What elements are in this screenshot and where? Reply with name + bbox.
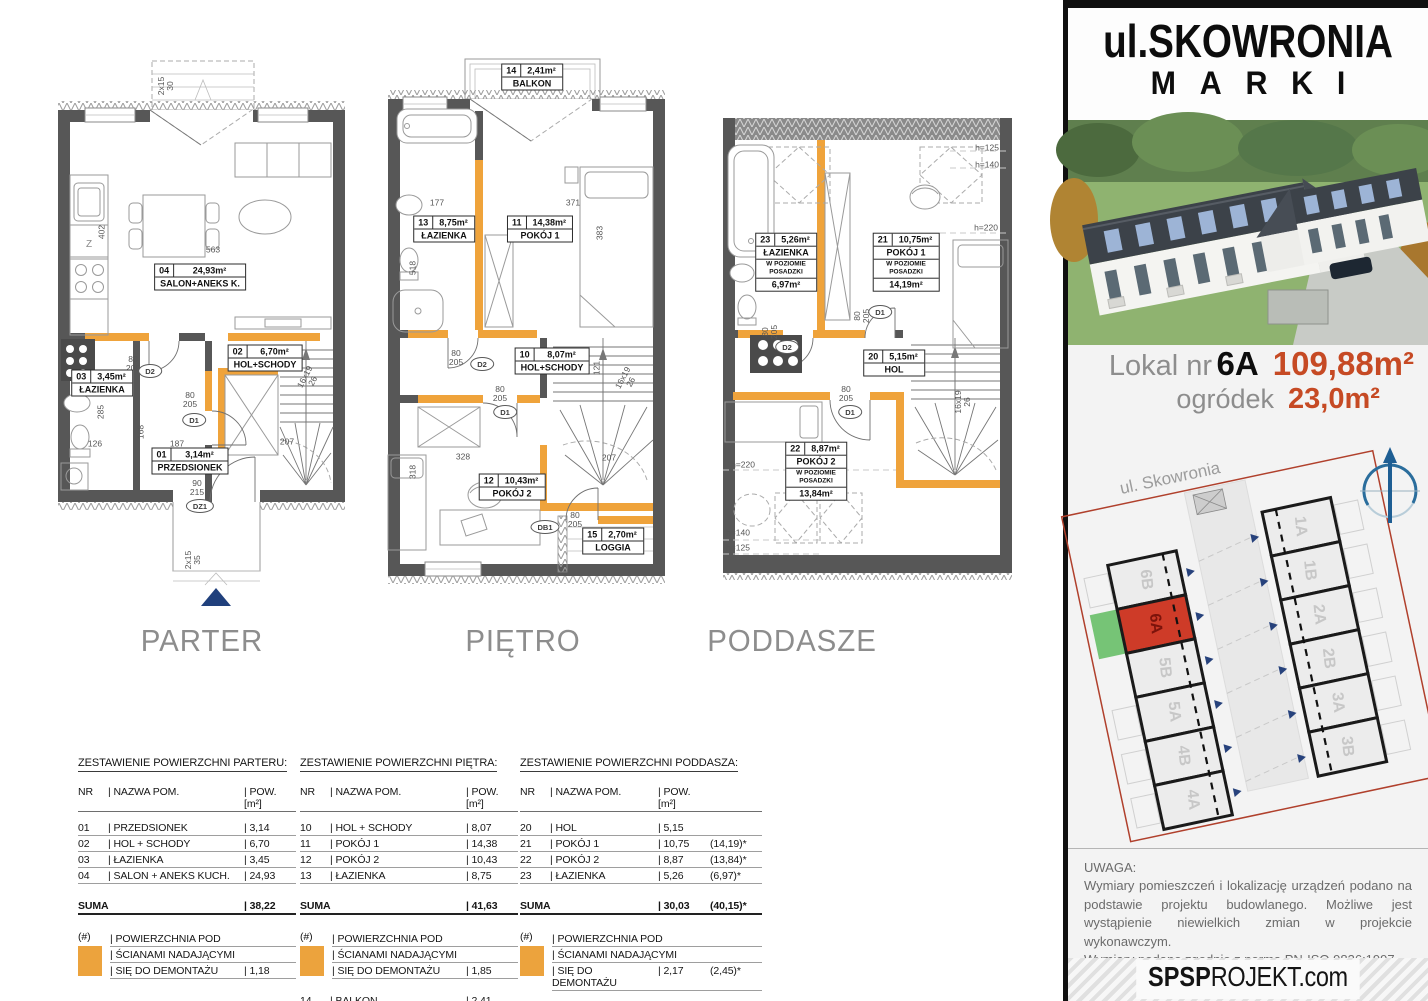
- street-title: ul.SKOWRONIA: [1097, 16, 1399, 67]
- rendering-image: [1068, 120, 1428, 345]
- legend-symbol: (#): [300, 931, 332, 943]
- dim: 80 205: [839, 385, 853, 403]
- pietro-interior-walls: [388, 111, 653, 572]
- floor-title-parter: PARTER: [141, 623, 263, 659]
- floor-title-pietro: PIĘTRO: [465, 623, 580, 659]
- table-row: 13| ŁAZIENKA| 8,75: [300, 868, 518, 884]
- dim: 121: [593, 361, 602, 375]
- door-tag-d1-poddasze-bottom: D1: [838, 405, 862, 419]
- dim: 168: [137, 425, 146, 439]
- table-row: 04| SALON + ANEKS KUCH.| 24,93: [78, 868, 296, 884]
- height-label: h=220: [974, 224, 998, 233]
- unit-info-block: Lokal nr 6A 109,88m² ogródek 23,0m²: [1068, 345, 1428, 443]
- height-label: h=125: [726, 544, 750, 553]
- room-label-pokoj2-poddasze: 228,87m² POKÓJ 2 W POZIOMIE POSADZKI 13,…: [785, 442, 847, 501]
- unit-label: 1A: [1291, 515, 1310, 538]
- entry-vestibule: [173, 502, 260, 585]
- unit-label: 5A: [1165, 701, 1184, 724]
- height-label: h=140: [975, 161, 999, 170]
- disclaimer-block: UWAGA: Wymiary pomieszczeń i lokalizację…: [1068, 848, 1428, 958]
- site-plan: ul. Skowronia: [1068, 443, 1428, 848]
- door-tag-db1: DB1: [530, 520, 559, 534]
- room-label-balkon: 142,41m² BALKON: [501, 64, 563, 91]
- parter-plan-drawing: Z: [55, 55, 350, 612]
- room-label-hol-pietro: 108,07m² HOL+SCHODY: [515, 348, 590, 375]
- tv-bench-icon: [235, 317, 331, 329]
- table-row: 22| POKÓJ 2| 8,87(13,84)*: [520, 852, 762, 868]
- dim: 80 205: [568, 511, 582, 529]
- disclaimer-text: Wymiary pomieszczeń i lokalizację urządz…: [1084, 877, 1412, 951]
- unit-label: Lokal nr: [1109, 350, 1212, 382]
- orange-swatch: [78, 946, 102, 976]
- table-row: 12| POKÓJ 2| 10,43: [300, 852, 518, 868]
- room-label-lazienka-poddasze: 235,26m² ŁAZIENKA W POZIOMIE POSADZKI 6,…: [755, 233, 817, 292]
- table-row: 01| PRZEDSIONEK| 3,14: [78, 820, 296, 836]
- unit-label: 2B: [1319, 647, 1338, 669]
- legend-symbol: (#): [78, 931, 110, 943]
- room-label-hol-poddasze: 205,15m² HOL: [863, 350, 925, 377]
- room-label-hol-parter: 026,70m² HOL+SCHODY: [228, 345, 303, 372]
- dim: 80 205: [493, 385, 507, 403]
- floorplan-sheet: Z 0424,93m: [0, 0, 1428, 1001]
- table-suma-row: SUMA| 30,03(40,15)*: [520, 898, 762, 915]
- table-legend: (#) | POWIERZCHNIA POD | ŚCIANAMI NADAJĄ…: [78, 931, 296, 979]
- spsprojekt-logo: SPSPROJEKT.com: [1136, 960, 1359, 999]
- table-row: 02| HOL + SCHODY| 6,70: [78, 836, 296, 852]
- site-plan-rotated: ul. Skowronia: [1056, 426, 1428, 841]
- project-title-block: ul.SKOWRONIA MARKI: [1068, 8, 1428, 120]
- unit-label: 3A: [1328, 691, 1347, 714]
- door-tag-d2-poddasze: D2: [775, 340, 799, 354]
- sofa-icon: [235, 143, 331, 177]
- bedroom1-icons: [485, 167, 653, 327]
- table-header: NR | NAZWA POM. | POW. [m²]: [78, 784, 296, 812]
- dim: 80 205: [761, 325, 779, 339]
- table-extra-rows: 14| BALKON| 2,41 15| LOGGIA| 2,70: [300, 993, 518, 1001]
- unit-label: 5B: [1155, 657, 1174, 679]
- table-title: ZESTAWIENIE POWIERZCHNI PODDASZA:: [520, 757, 738, 772]
- skylight-dashed: [768, 147, 982, 203]
- compass-icon: [1360, 447, 1420, 523]
- dim: 16x19 26: [954, 390, 972, 413]
- door-tag-dz1: DZ1: [186, 499, 214, 513]
- unit-number: 6A: [1217, 345, 1259, 382]
- table-row: 20| HOL| 5,15: [520, 820, 762, 836]
- door-tag-d2-pietro: D2: [470, 357, 494, 371]
- table-row: 21| POKÓJ 1| 10,75(14,19)*: [520, 836, 762, 852]
- dim: 2x15 30: [157, 77, 175, 95]
- unit-label: 4B: [1174, 745, 1193, 767]
- table-header: NR | NAZWA POM. | POW. [m²]: [300, 784, 518, 812]
- kitchen-z-label: Z: [86, 239, 92, 250]
- dim: 90 215: [190, 479, 204, 497]
- door-tag-d2-parter: D2: [138, 364, 162, 378]
- room-label-lazienka-parter: 033,45m² ŁAZIENKA: [71, 370, 133, 397]
- table-row: 23| ŁAZIENKA| 5,26(6,97)*: [520, 868, 762, 884]
- table-title: ZESTAWIENIE POWIERZCHNI PARTERU:: [78, 757, 287, 772]
- height-label: h=220: [731, 461, 755, 470]
- dim: 126: [88, 440, 102, 449]
- unit-label-6a: 6A: [1146, 613, 1165, 636]
- orange-swatch: [520, 946, 544, 976]
- table-row: 10| HOL + SCHODY| 8,07: [300, 820, 518, 836]
- table-poddasze: ZESTAWIENIE POWIERZCHNI PODDASZA: NR | N…: [520, 757, 762, 1001]
- height-label: h=125: [975, 144, 999, 153]
- dim: 207: [280, 438, 294, 447]
- coffee-table-icon: [239, 200, 291, 234]
- room-label-loggia: 152,70m² LOGGIA: [582, 528, 644, 555]
- wardrobe-icon: [225, 375, 278, 455]
- top-black-bar: [1068, 0, 1428, 8]
- room-label-salon: 0424,93m² SALON+ANEKS K.: [154, 264, 246, 291]
- table-title: ZESTAWIENIE POWIERZCHNI PIĘTRA:: [300, 757, 497, 772]
- table-legend: (#) | POWIERZCHNIA POD | ŚCIANAMI NADAJĄ…: [520, 931, 762, 991]
- orange-swatch: [300, 946, 324, 976]
- table-legend: (#) | POWIERZCHNIA POD | ŚCIANAMI NADAJĄ…: [300, 931, 518, 979]
- dim: 318: [409, 465, 418, 479]
- disclaimer-title: UWAGA:: [1084, 859, 1412, 877]
- dim: 207: [602, 454, 616, 463]
- table-pietro: ZESTAWIENIE POWIERZCHNI PIĘTRA: NR | NAZ…: [300, 757, 518, 1001]
- room-label-pokoj1-poddasze: 2110,75m² POKÓJ 1 W POZIOMIE POSADZKI 14…: [873, 233, 940, 292]
- carport-icon: [1268, 290, 1328, 324]
- unit-label: 3B: [1338, 735, 1357, 757]
- dim: 285: [97, 405, 106, 419]
- unit-label: 2A: [1310, 603, 1329, 626]
- dim: 383: [596, 226, 605, 240]
- garden-label: ogródek: [1176, 384, 1274, 414]
- dim: 80 205: [183, 391, 197, 409]
- city-title: MARKI: [1077, 67, 1419, 99]
- table-parter: ZESTAWIENIE POWIERZCHNI PARTERU: NR | NA…: [78, 757, 296, 979]
- room-label-pokoj1-pietro: 1114,38m² POKÓJ 1: [507, 216, 573, 243]
- height-label: h=140: [726, 529, 750, 538]
- unit-label: 1B: [1300, 559, 1319, 581]
- door-tag-d1-poddasze-top: D1: [868, 305, 892, 319]
- dim: 371: [566, 199, 580, 208]
- room-label-lazienka-pietro: 138,75m² ŁAZIENKA: [413, 216, 475, 243]
- unit-area: 109,88m²: [1273, 345, 1414, 382]
- door-tag-d1-pietro: D1: [493, 405, 517, 419]
- dim: 328: [456, 453, 470, 462]
- room-label-przedsionek: 013,14m² PRZEDSIONEK: [151, 448, 228, 475]
- unit-label: 6B: [1137, 569, 1156, 591]
- door-tag-d1-parter: D1: [182, 413, 206, 427]
- floor-title-poddasze: PODDASZE: [707, 623, 877, 659]
- legend-symbol: (#): [520, 931, 552, 943]
- kitchen-icons: Z: [70, 175, 108, 335]
- table-row: 11| POKÓJ 1| 14,38: [300, 836, 518, 852]
- dim: 518: [409, 261, 418, 275]
- entrance-arrow-icon: [201, 588, 231, 606]
- unit-label: 4A: [1183, 789, 1202, 812]
- table-suma-row: SUMA| 38,22: [78, 898, 296, 915]
- garden-area: 23,0m²: [1288, 383, 1380, 415]
- dim: 2x15 35: [184, 551, 202, 569]
- wardrobe-icon: [825, 173, 850, 320]
- table-suma-row: SUMA| 41,63: [300, 898, 518, 915]
- dim: 80 205: [449, 349, 463, 367]
- right-info-panel: ul.SKOWRONIA MARKI: [1063, 0, 1428, 1001]
- dim: 177: [430, 199, 444, 208]
- table-header: NR | NAZWA POM. | POW. [m²]: [520, 784, 762, 812]
- room-label-pokoj2-pietro: 1210,43m² POKÓJ 2: [479, 474, 546, 501]
- dim: 563: [206, 246, 220, 255]
- table-row: 14| BALKON| 2,41: [300, 993, 518, 1001]
- dim: 402: [98, 225, 107, 239]
- logo-footer: SPSPROJEKT.com: [1068, 958, 1428, 1001]
- table-row: 03| ŁAZIENKA| 3,45: [78, 852, 296, 868]
